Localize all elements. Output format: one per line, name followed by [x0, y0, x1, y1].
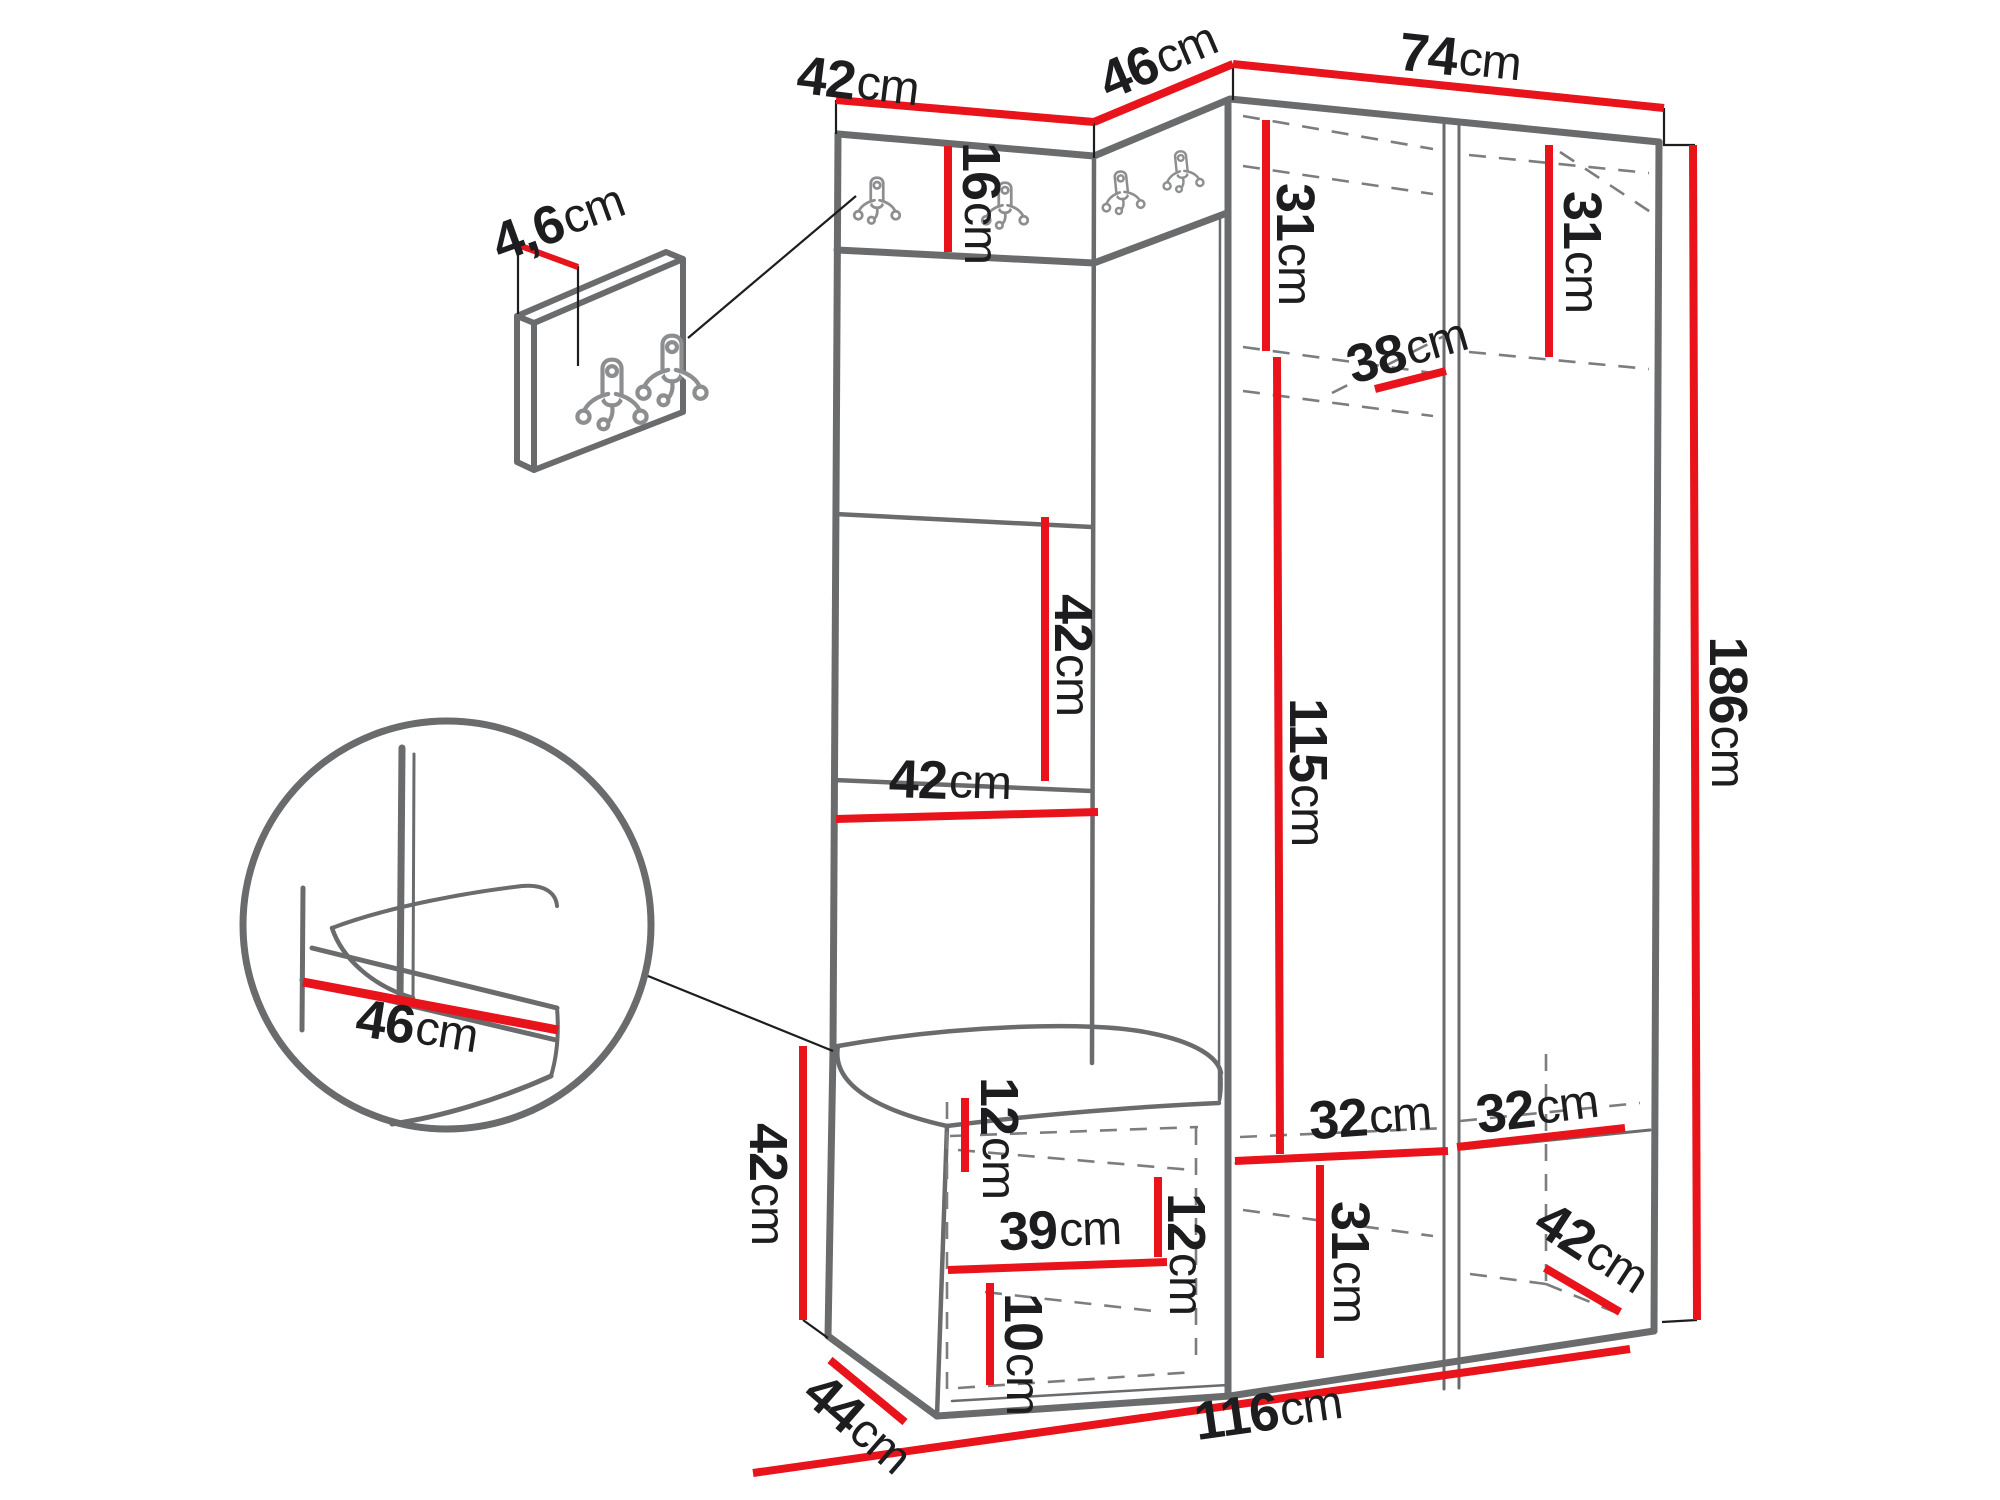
dimension-label-total-width: 116cm — [1190, 1372, 1345, 1452]
hook-rail — [854, 149, 1204, 228]
bench-front-left-edge — [937, 1126, 947, 1416]
dimension-label-top-panel-width: 42cm — [794, 45, 922, 119]
wardrobe-right-edge — [1654, 142, 1659, 1331]
panel-seam — [835, 514, 1092, 527]
dim-line-panel-section-width — [836, 812, 1098, 819]
double-coat-hook-icon — [1099, 169, 1145, 215]
bench-corner-detail-circle — [243, 721, 651, 1129]
double-coat-hook-icon — [1160, 149, 1204, 193]
dimension-label-hanging-space-height: 115cm — [1278, 698, 1338, 846]
dimension-label-bottom-depth: 42cm — [1524, 1190, 1659, 1307]
dimension-label-panel-section-width: 42cm — [888, 749, 1012, 813]
double-coat-hook-icon — [854, 178, 900, 224]
dimension-label-bottom-shelf-left: 32cm — [1307, 1083, 1433, 1151]
wall-panel-detail — [517, 252, 707, 470]
angled-panel-edge — [1219, 215, 1220, 1100]
dimension-label-wardrobe-left-top: 31cm — [1265, 183, 1325, 305]
circle-leader-line — [648, 976, 833, 1051]
dim-line-bench-inner-width — [948, 1262, 1167, 1270]
main-unit-outline — [833, 99, 1659, 1396]
panel-left-edge — [833, 134, 838, 1051]
dimension-label-top-wardrobe-width: 74cm — [1396, 22, 1524, 94]
bench-back-edge — [828, 1051, 833, 1336]
dimension-label-hook-rail-height: 16cm — [951, 142, 1011, 264]
diagram-canvas: 42cm46cm74cm4,6cm16cm31cm31cm38cm42cm42c… — [0, 0, 2000, 1500]
dimension-label-wardrobe-right-top: 31cm — [1552, 191, 1612, 313]
dimension-label-total-height: 186cm — [1698, 636, 1758, 787]
furniture-dimension-diagram: 42cm46cm74cm4,6cm16cm31cm31cm38cm42cm42c… — [0, 0, 2000, 1500]
dimension-label-seat-depth-detail: 46cm — [352, 988, 482, 1066]
dim-line-bottom-shelf-left — [1235, 1151, 1448, 1161]
dimension-label-bench-inner-width: 39cm — [998, 1198, 1122, 1262]
dimension-label-bench-base-height: 10cm — [993, 1293, 1053, 1415]
dimension-label-bench-height: 42cm — [738, 1123, 798, 1245]
dimension-label-seat-frame-height: 12cm — [969, 1077, 1029, 1199]
dim-line-total-height — [1693, 145, 1697, 1320]
detail-leader-line — [688, 196, 856, 338]
dimension-label-bottom-section-height: 31cm — [1320, 1201, 1380, 1323]
seat-cushion-back-edge — [838, 1026, 1221, 1073]
dimension-label-panel-section-height: 42cm — [1043, 594, 1103, 716]
seat-cushion-left-edge — [837, 1046, 947, 1126]
dimension-label-bench-inner-height: 12cm — [1156, 1193, 1216, 1315]
